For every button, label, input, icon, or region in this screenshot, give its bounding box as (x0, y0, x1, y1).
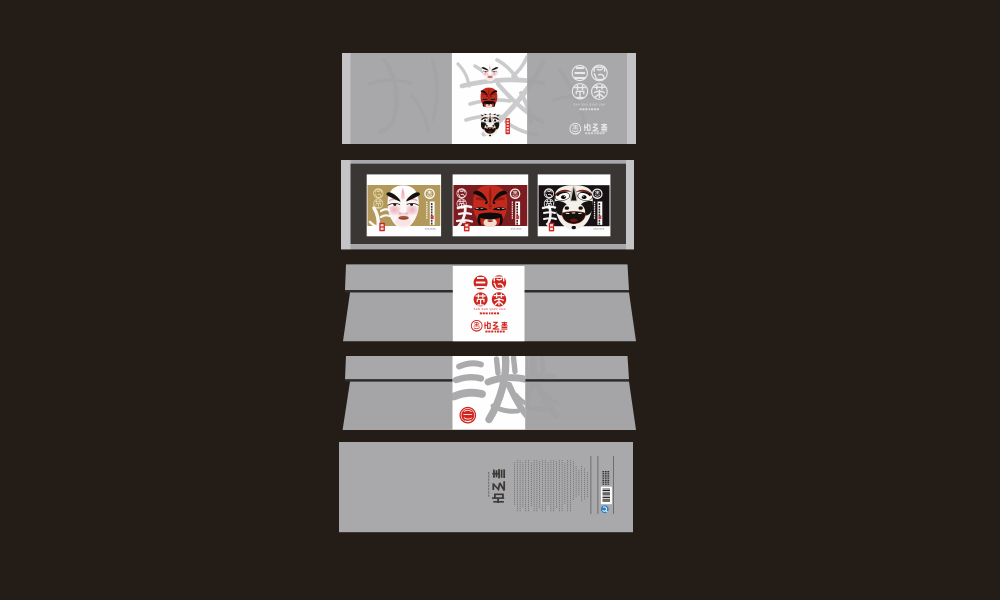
svg-text:SAN SHU QIAO CHA: SAN SHU QIAO CHA (573, 102, 605, 106)
svg-text:SAN SHU QIAO CHA: SAN SHU QIAO CHA (474, 307, 506, 311)
